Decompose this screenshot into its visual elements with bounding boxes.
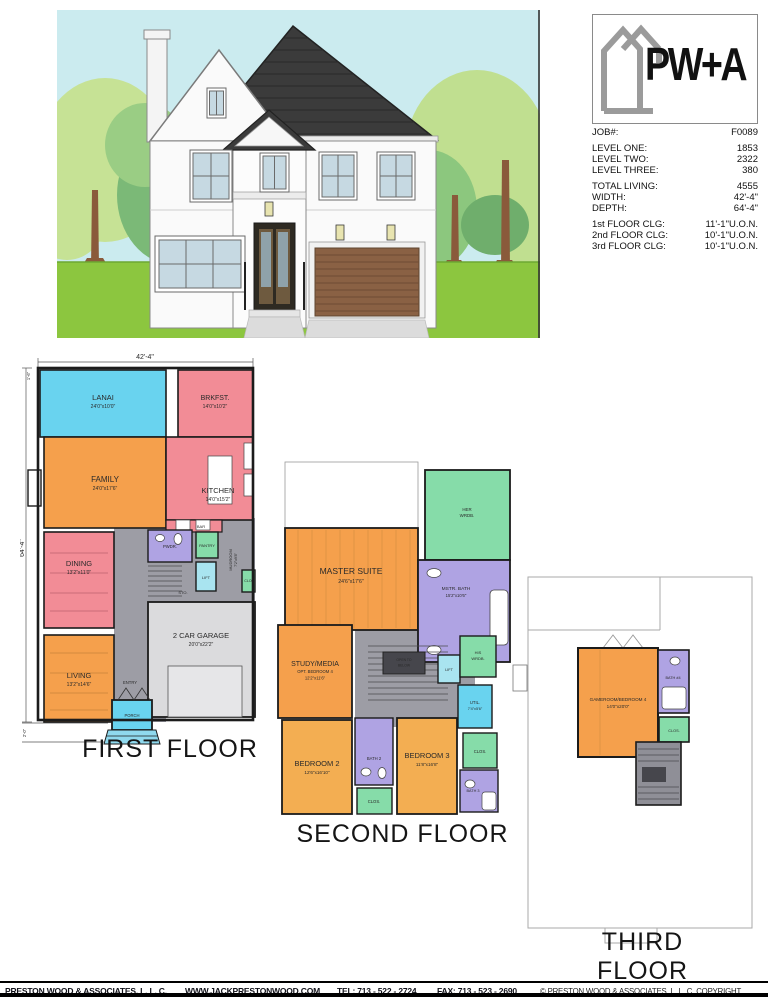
job-row: TOTAL LIVING:4555 [592,181,758,192]
label-mudroom: MUDROOM [228,549,233,571]
sink-icon [361,768,371,776]
label-porch: PORCH [124,713,139,718]
svg-text:24'0"x17'6": 24'0"x17'6" [93,486,118,492]
tower-window [260,153,289,192]
garage-door-pad [168,666,242,717]
svg-text:13'2"x11'0": 13'2"x11'0" [67,570,91,576]
room-dining [44,532,114,628]
sink-icon [465,780,475,788]
right-upper-window-1 [319,152,357,200]
label-master-bath: MSTR. BATH [442,586,471,592]
svg-text:12'2"x11'6": 12'2"x11'6" [305,676,326,681]
job-row: 2nd FLOOR CLG:10'-1"U.O.N. [592,230,758,241]
dim-small-top: 1'-6" [26,371,31,380]
label-closet-b: CLOS. [474,749,487,754]
svg-text:BELOW: BELOW [398,664,411,668]
tub-icon [662,687,686,709]
svg-text:OPT. BEDROOM 4: OPT. BEDROOM 4 [297,669,333,674]
toilet-icon [378,768,386,779]
svg-text:13'2"x14'6": 13'2"x14'6" [67,682,92,688]
walkway [244,317,305,338]
svg-text:WRDB.: WRDB. [471,656,484,661]
svg-text:15'2"x10'6": 15'2"x10'6" [446,593,467,598]
svg-text:14'0"x10'2": 14'0"x10'2" [203,404,228,410]
attic-window [207,88,226,118]
label-lift: LIFT [202,575,211,580]
label-open-below: OPEN TO [396,658,411,662]
right-upper-window-2 [377,152,415,200]
svg-text:WRDB.: WRDB. [460,513,475,518]
label-brkfst: BRKFST. [201,395,230,402]
dormer-marks [603,635,643,648]
garage-door [309,242,425,318]
left-upper-window [190,150,232,202]
label-pwdr: PWDR. [163,544,177,549]
first-floor-plan: 42'-4" 64'-4" 1'-6" 2'-0" [20,348,265,748]
label-clo: CLO. [244,579,252,583]
label-pantry: PANTRY [199,543,215,548]
label-bedroom-2: BEDROOM 2 [294,759,339,768]
svg-text:11'8"x16'8": 11'8"x16'8" [416,762,439,767]
room-gameroom [578,648,658,757]
dim-width: 42'-4" [136,354,154,361]
label-closet-a: CLOS. [368,799,381,804]
label-entry: ENTRY [123,680,137,685]
dim-small-bottom: 2'-0" [22,728,27,737]
label-closet: CLOS. [668,729,679,733]
label-living: LIVING [67,671,92,680]
label-bath-3: BATH 3 [466,789,479,793]
svg-text:24'6"x17'6": 24'6"x17'6" [338,579,364,585]
attic-access [513,665,527,691]
sink-icon [427,646,441,655]
job-info-table: JOB#:F0089 LEVEL ONE:1853 LEVEL TWO:2322… [592,127,758,252]
footer-black-bar [0,993,768,997]
sink-icon [427,569,441,578]
label-his-wardrobe: HIS [475,650,482,655]
svg-text:12'6"x16'10": 12'6"x16'10" [304,770,330,775]
tub-icon [482,792,496,810]
driveway [305,320,429,338]
label-sto: STO. [178,590,187,595]
label-her-wardrobe: HER [462,507,471,512]
label-bath-4: BATH #4 [665,676,680,680]
svg-text:7'4"x5'6": 7'4"x5'6" [468,707,483,711]
label-kitchen: KITCHEN [202,486,235,495]
toilet-icon [174,534,182,545]
dim-height: 64'-4" [20,539,26,557]
sink-icon [156,535,165,542]
job-row: LEVEL TWO:2322 [592,154,758,165]
label-bath-2: BATH 2 [367,756,382,761]
svg-text:7'2"x9'8": 7'2"x9'8" [234,552,238,566]
sink-icon [670,657,680,665]
job-row: 1st FLOOR CLG:11'-1"U.O.N. [592,219,758,230]
second-floor-title: SECOND FLOOR [295,820,510,849]
job-row: LEVEL ONE:1853 [592,143,758,154]
svg-text:14'0"x20'0": 14'0"x20'0" [607,704,630,709]
logo-text: PW+A [645,37,745,91]
firm-logo: PW+A [592,14,758,124]
job-row: 3rd FLOOR CLG:10'-1"U.O.N. [592,241,758,252]
third-floor-title: THIRD FLOOR [555,928,730,986]
label-garage: 2 CAR GARAGE [173,631,229,640]
front-door [245,223,304,317]
third-floor-plan: GAMEROOM/BEDROOM 4 14'0"x20'0" BATH #4 C… [505,565,768,965]
job-row: DEPTH:64'-4" [592,203,758,214]
job-row: WIDTH:42'-4" [592,192,758,203]
label-dining: DINING [66,559,92,568]
svg-text:20'0"x22'2": 20'0"x22'2" [189,642,214,648]
label-lanai: LANAI [92,393,114,402]
job-row: LEVEL THREE:380 [592,165,758,176]
second-floor-plan: OPEN TO BELOW MASTER SUITE 24'6"x17'6" H… [268,440,520,820]
label-family: FAMILY [91,475,120,484]
room-bath-2 [355,718,393,785]
plan-sheet: PW+A JOB#:F0089 LEVEL ONE:1853 LEVEL TWO… [0,0,768,997]
label-util: UTIL. [470,700,480,705]
label-master-suite: MASTER SUITE [320,566,383,576]
first-floor-title: FIRST FLOOR [60,735,280,764]
label-bedroom-3: BEDROOM 3 [404,751,449,760]
job-row: JOB#:F0089 [592,127,758,138]
label-study-media: STUDY/MEDIA [291,661,339,668]
svg-text:14'0"x15'2": 14'0"x15'2" [206,497,231,503]
open-roof-area [285,462,418,528]
label-bar: BAR [197,524,205,529]
svg-text:24'0"x10'0": 24'0"x10'0" [91,404,116,410]
left-lower-window [155,236,245,292]
stair-landing [642,767,666,782]
front-elevation-illustration [57,10,540,338]
label-gameroom: GAMEROOM/BEDROOM 4 [590,697,647,702]
label-lift: LIFT [445,668,453,672]
